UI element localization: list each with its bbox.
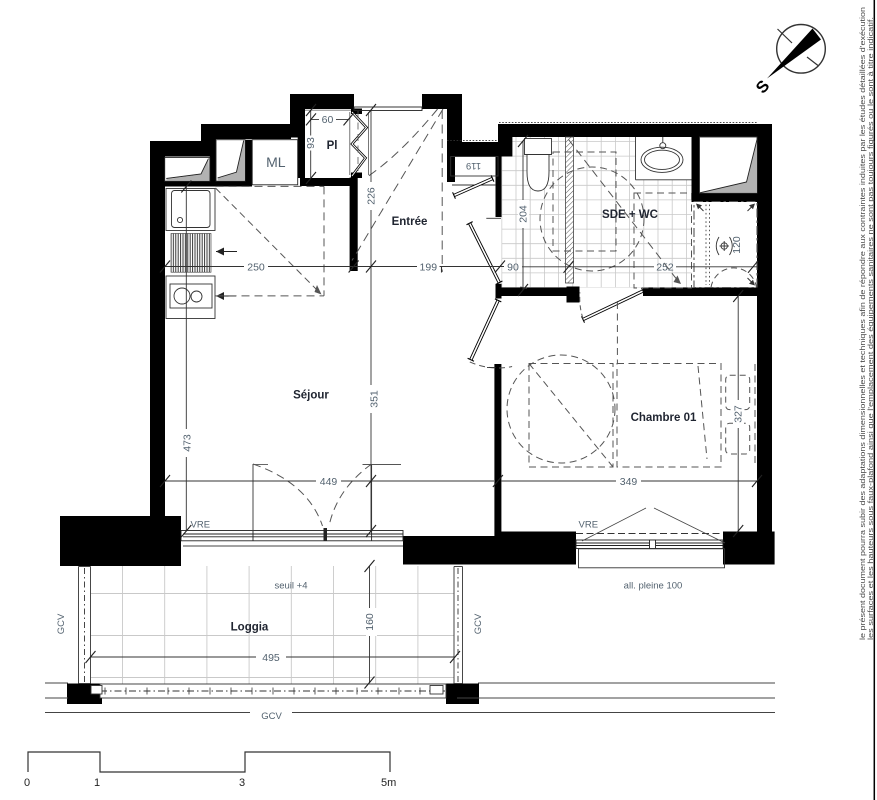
svg-text:Séjour: Séjour xyxy=(293,390,329,402)
svg-text:473: 473 xyxy=(182,434,194,452)
svg-text:VRE: VRE xyxy=(191,519,211,530)
svg-text:495: 495 xyxy=(262,652,280,664)
svg-text:252: 252 xyxy=(656,262,674,274)
svg-text:204: 204 xyxy=(518,205,530,223)
svg-text:GCV: GCV xyxy=(473,613,484,634)
svg-text:Entrée: Entrée xyxy=(392,216,428,228)
svg-text:3: 3 xyxy=(239,777,245,789)
svg-text:226: 226 xyxy=(366,187,378,205)
svg-text:Chambre 01: Chambre 01 xyxy=(631,412,697,424)
svg-text:351: 351 xyxy=(369,390,381,408)
svg-text:ML: ML xyxy=(266,154,286,170)
svg-text:les surfaces et les hauteurs s: les surfaces et les hauteurs sous faux-p… xyxy=(866,17,875,640)
svg-text:all. pleine 100: all. pleine 100 xyxy=(624,581,683,592)
svg-text:seuil +4: seuil +4 xyxy=(274,581,307,592)
svg-text:VRE: VRE xyxy=(579,519,599,530)
svg-text:119: 119 xyxy=(466,160,481,171)
svg-text:GCV: GCV xyxy=(261,711,282,722)
svg-text:SDE + WC: SDE + WC xyxy=(602,209,658,221)
svg-text:Pl: Pl xyxy=(327,140,338,152)
svg-text:1: 1 xyxy=(94,777,100,789)
svg-text:199: 199 xyxy=(420,261,438,273)
svg-text:93: 93 xyxy=(305,137,317,149)
svg-text:349: 349 xyxy=(620,476,638,488)
svg-text:449: 449 xyxy=(320,476,338,488)
svg-text:5m: 5m xyxy=(381,777,396,789)
svg-text:GCV: GCV xyxy=(56,613,67,634)
svg-text:0: 0 xyxy=(24,777,30,789)
svg-text:327: 327 xyxy=(733,405,745,423)
svg-text:90: 90 xyxy=(507,262,519,274)
svg-text:120: 120 xyxy=(731,236,743,254)
svg-text:250: 250 xyxy=(247,261,265,273)
svg-text:160: 160 xyxy=(364,613,376,631)
svg-text:60: 60 xyxy=(322,114,334,126)
svg-text:Loggia: Loggia xyxy=(231,622,269,634)
